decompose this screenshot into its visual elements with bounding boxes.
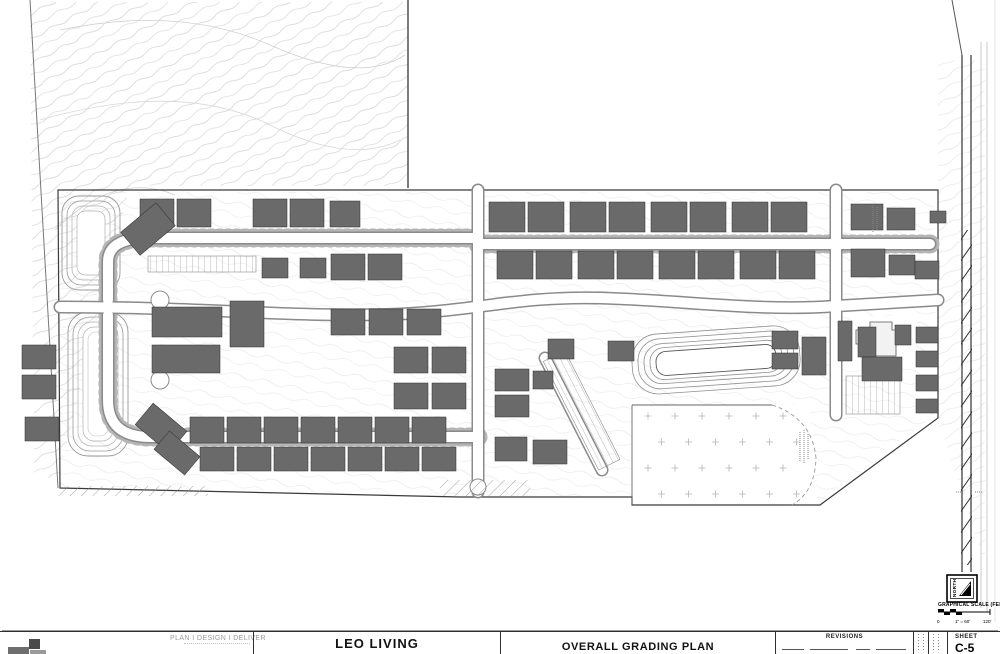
building-footprint: [22, 375, 56, 399]
firm-tagline-cell: PLAN I DESIGN I DELIVER: [170, 632, 253, 654]
revision-rule: [876, 649, 906, 650]
building-footprint: [152, 345, 220, 373]
building-footprint: [489, 202, 525, 232]
building-footprint: [301, 417, 335, 443]
building-footprint: [895, 325, 911, 345]
firm-tagline: PLAN I DESIGN I DELIVER: [170, 635, 253, 642]
building-footprint: [264, 417, 298, 443]
building-footprint: [887, 208, 915, 230]
building-footprint: [740, 251, 776, 279]
building-footprint: [432, 383, 466, 409]
building-footprint: [177, 199, 211, 227]
building-footprint: [394, 347, 428, 373]
project-name: LEO LIVING: [335, 636, 419, 651]
title-block: PLAN I DESIGN I DELIVER LEO LIVING OVERA…: [0, 631, 1000, 654]
scale-tick-mid: 1" = 60': [955, 619, 970, 624]
building-footprint: [772, 353, 798, 369]
building-footprint: [617, 251, 653, 279]
scale-tick-end: 120': [983, 619, 992, 624]
building-footprint: [385, 447, 419, 471]
building-footprint: [732, 202, 768, 232]
building-footprint: [802, 337, 826, 375]
revisions-cell: REVISIONS: [775, 632, 913, 654]
building-footprint: [412, 417, 446, 443]
building-footprint: [533, 440, 567, 464]
building-footprint: [690, 202, 726, 232]
building-footprint: [578, 251, 614, 279]
building-footprint: [772, 331, 798, 349]
building-footprint: [227, 417, 261, 443]
revision-rule: [782, 649, 804, 650]
building-footprint: [930, 211, 946, 223]
title-block-stamp-column: [913, 632, 928, 654]
building-footprint: [230, 301, 264, 347]
building-footprint: [152, 307, 222, 337]
building-footprint: [495, 395, 529, 417]
revision-rule: [856, 649, 870, 650]
building-footprint: [916, 399, 938, 413]
building-footprint: [495, 369, 529, 391]
building-footprint: [407, 309, 441, 335]
building-footprint: [190, 417, 224, 443]
building-footprint: [915, 261, 939, 279]
north-arrow: NORTH: [947, 575, 977, 602]
building-footprint: [608, 341, 634, 361]
north-label: NORTH: [952, 578, 957, 597]
building-footprint: [916, 351, 938, 367]
building-footprint: [375, 417, 409, 443]
revision-rule: [810, 649, 848, 650]
building-footprint: [25, 417, 59, 441]
graphical-scale: GRAPHICAL SCALE (FEET) 0 1" = 60' 120': [937, 602, 1000, 624]
building-footprint: [394, 383, 428, 409]
building-footprint: [916, 375, 938, 391]
sheet-number-cell: SHEET C-5: [947, 632, 1000, 654]
firm-website-rule: [184, 643, 250, 644]
building-footprint: [838, 321, 852, 361]
building-footprint: [237, 447, 271, 471]
building-footprint: [858, 327, 876, 357]
building-footprint: [771, 202, 807, 232]
building-footprint: [651, 202, 687, 232]
building-footprint: [851, 204, 883, 230]
building-footprint: [548, 339, 574, 359]
building-footprint: [889, 255, 915, 275]
building-footprint: [851, 249, 885, 277]
building-footprint: [338, 417, 372, 443]
building-footprint: [330, 201, 360, 227]
site-plan-canvas: NORTH GRAPHICAL SCALE (FEET) 0 1" = 60' …: [0, 0, 1000, 654]
sheet-title-cell: OVERALL GRADING PLAN: [500, 632, 775, 654]
building-footprint: [533, 371, 553, 389]
building-footprint: [422, 447, 456, 471]
building-footprint: [331, 309, 365, 335]
building-footprint: [331, 254, 365, 280]
building-footprint: [300, 258, 326, 278]
building-footprint: [862, 357, 902, 381]
building-footprint: [369, 309, 403, 335]
building-footprint: [495, 437, 527, 461]
building-footprint: [432, 347, 466, 373]
firm-logo-square: [8, 647, 29, 654]
scale-tick-0: 0: [937, 619, 940, 624]
building-footprint: [290, 199, 324, 227]
building-footprint: [528, 202, 564, 232]
building-footprint: [659, 251, 695, 279]
building-footprint: [916, 327, 938, 343]
building-footprint: [253, 199, 287, 227]
building-footprint: [274, 447, 308, 471]
drawing-sheet: NORTH GRAPHICAL SCALE (FEET) 0 1" = 60' …: [0, 0, 1000, 654]
scale-title: GRAPHICAL SCALE (FEET): [938, 602, 1000, 608]
building-footprint: [497, 251, 533, 279]
building-footprint: [262, 258, 288, 278]
building-footprint: [22, 345, 56, 369]
building-footprint: [779, 251, 815, 279]
project-name-cell: LEO LIVING: [253, 632, 500, 654]
firm-logo-square: [30, 650, 46, 654]
building-footprint: [200, 447, 234, 471]
building-footprint: [348, 447, 382, 471]
building-footprint: [570, 202, 606, 232]
sheet-label: SHEET: [955, 634, 1000, 640]
building-footprint: [311, 447, 345, 471]
sheet-title: OVERALL GRADING PLAN: [562, 641, 714, 653]
sheet-number: C-5: [955, 641, 1000, 654]
revisions-label: REVISIONS: [776, 634, 913, 640]
firm-logo-square: [29, 639, 40, 649]
building-footprint: [368, 254, 402, 280]
title-block-stamp-column: [928, 632, 947, 654]
building-footprint: [698, 251, 734, 279]
building-footprint: [536, 251, 572, 279]
building-footprint: [609, 202, 645, 232]
